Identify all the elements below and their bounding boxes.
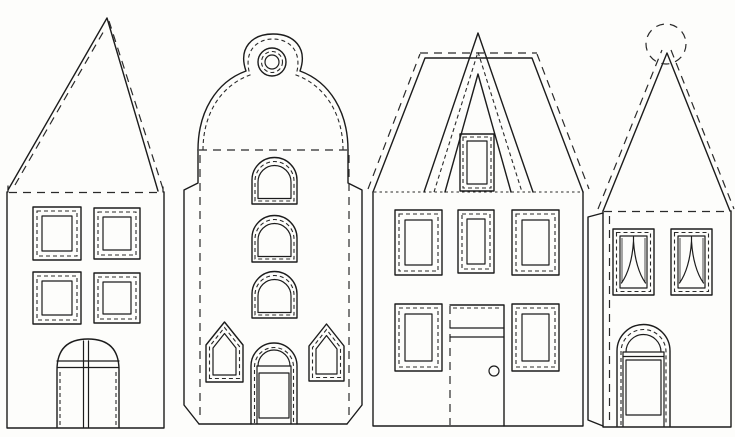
- house-3-roof-fold-right: [537, 54, 589, 189]
- door-panel: [259, 373, 289, 418]
- house-3-window-top-left: [395, 210, 442, 275]
- house-4-window-left: [613, 229, 654, 295]
- house-2-round-window: [258, 48, 286, 76]
- house-1-window-top-left: [33, 207, 81, 260]
- house-3-roof-outline: [373, 58, 583, 192]
- house-3-window-bottom-right: [512, 304, 559, 371]
- house-3-window-top-right: [512, 210, 559, 275]
- house-3-window-bottom-left: [395, 304, 442, 371]
- doorknob: [489, 366, 499, 376]
- house-2-arch-window-2: [252, 216, 297, 263]
- house-1-roof-fold-right: [109, 21, 164, 192]
- house-4-roof-fold-right: [671, 50, 734, 209]
- house-1: [7, 18, 164, 428]
- curtains: [680, 237, 704, 283]
- house-2-door: [251, 343, 297, 424]
- house-4: [588, 24, 734, 427]
- house-3-roof-fold-left: [368, 54, 420, 189]
- house-4-window-right: [671, 229, 712, 295]
- door-panel: [626, 360, 661, 415]
- house-4-roof-outline: [603, 53, 730, 211]
- house-1-roof-fold-left: [15, 29, 105, 185]
- door-cross-vertical: [84, 341, 89, 427]
- house-2-pointed-window-right: [309, 324, 344, 381]
- curtains: [622, 237, 646, 283]
- house-4-glue-tab: [588, 213, 603, 426]
- door-fanlight: [258, 350, 290, 366]
- house-2-pointed-window-left: [206, 322, 243, 382]
- house-1-door: [57, 339, 119, 427]
- house-2-arch-window-3: [252, 272, 297, 319]
- house-3-a-frame-trim: [424, 33, 533, 192]
- house-1-window-bottom-right: [94, 273, 140, 323]
- house-2-left-flap: [184, 150, 199, 424]
- house-2: [184, 34, 362, 424]
- paper-house-templates-drawing: [0, 0, 735, 437]
- door-transom-band: [450, 328, 504, 337]
- house-4-door: [617, 325, 670, 427]
- house-1-window-bottom-left: [33, 272, 81, 324]
- house-3: [368, 33, 589, 426]
- house-3-attic-window: [460, 134, 494, 191]
- door-fanlight: [626, 335, 661, 353]
- house-3-window-top-center: [458, 210, 494, 273]
- house-4-ball-finial: [646, 24, 686, 64]
- house-1-window-top-right: [94, 208, 140, 259]
- house-2-arch-window-1: [252, 158, 297, 205]
- house-4-roof-fold-left: [598, 50, 662, 209]
- house-3-door: [450, 305, 504, 426]
- template-sheet: [0, 0, 735, 437]
- house-1-eave-ticks: [8, 186, 163, 192]
